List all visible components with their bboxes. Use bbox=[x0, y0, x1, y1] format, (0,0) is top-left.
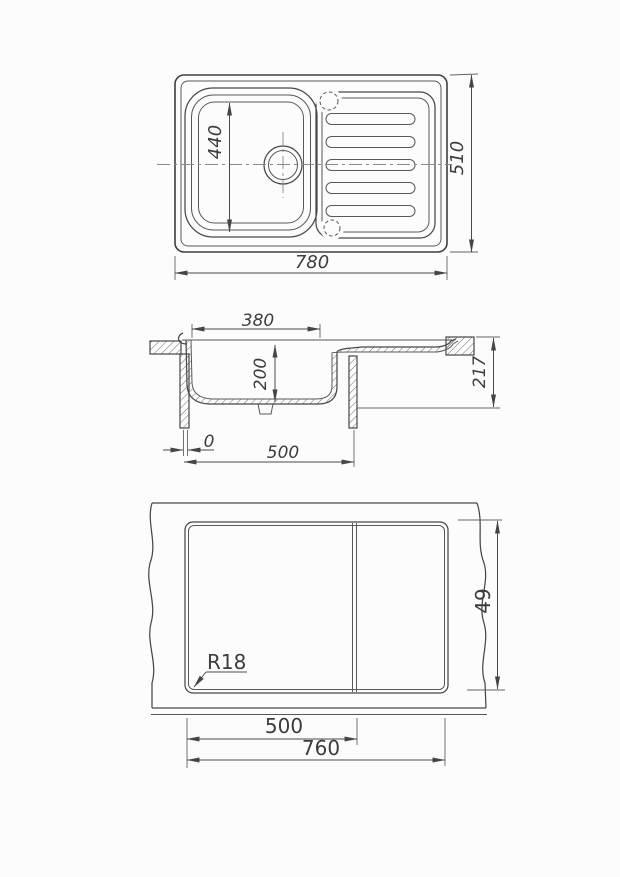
drainer-rib bbox=[326, 160, 415, 171]
dim-label-780: 780 bbox=[295, 252, 329, 273]
dim-corner-radius: R18 bbox=[194, 650, 247, 687]
dim-cutout-length: 760 bbox=[187, 718, 445, 766]
countertop-left-section bbox=[150, 341, 181, 354]
dim-label-500-cutout: 500 bbox=[265, 714, 303, 738]
bowl-middle-contour bbox=[192, 95, 311, 230]
dim-label-510: 510 bbox=[447, 141, 468, 175]
sink-technical-drawing: 440 780 510 bbox=[0, 0, 620, 877]
dim-label-0: 0 bbox=[204, 432, 215, 452]
section-view: 380 200 217 0 500 bbox=[150, 311, 500, 467]
bowl-inner-contour bbox=[199, 102, 304, 223]
dim-label-760: 760 bbox=[302, 736, 340, 760]
drainer-rib bbox=[326, 137, 415, 148]
cabinet-wall-right bbox=[349, 356, 357, 428]
dim-bowl-depth: 200 bbox=[251, 345, 275, 402]
drainer-ribs bbox=[326, 114, 415, 217]
dim-label-440: 440 bbox=[205, 125, 226, 159]
drainer-inner-contour bbox=[322, 98, 429, 232]
dim-label-200: 200 bbox=[251, 358, 271, 390]
top-view: 440 780 510 bbox=[157, 74, 478, 280]
dim-bowl-opening: 380 bbox=[192, 311, 320, 338]
dim-edge-offset: 0 bbox=[163, 430, 214, 456]
dim-overall-length: 780 bbox=[175, 252, 447, 280]
dim-cutout-width: 49 bbox=[458, 520, 505, 690]
drainer-rib bbox=[326, 114, 415, 125]
drawing-sheet: 440 780 510 bbox=[0, 0, 620, 877]
dim-label-217: 217 bbox=[470, 356, 490, 389]
dim-bowl-length: 440 bbox=[205, 103, 230, 232]
dim-label-380: 380 bbox=[242, 311, 274, 331]
drain-outlet bbox=[258, 404, 273, 414]
dim-label-49: 49 bbox=[471, 588, 495, 613]
drainer-rib bbox=[326, 183, 415, 194]
dim-label-500-section: 500 bbox=[267, 443, 299, 463]
dim-overall-width: 510 bbox=[447, 74, 478, 252]
dim-label-r18: R18 bbox=[207, 650, 246, 674]
countertop-torn-edge-left bbox=[149, 503, 154, 708]
cutout-view: R18 49 500 760 bbox=[149, 503, 505, 768]
drainer-rib bbox=[326, 206, 415, 217]
